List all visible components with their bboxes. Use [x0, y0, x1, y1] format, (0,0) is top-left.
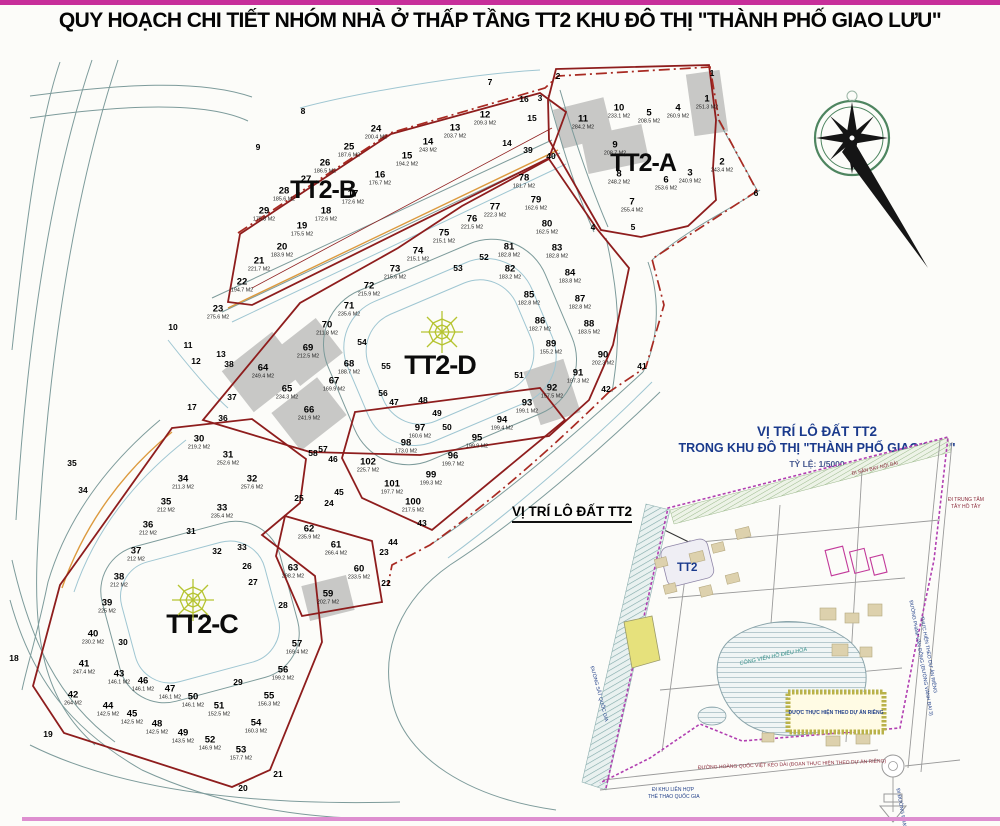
- parcel-area: 199.4 M2: [491, 426, 513, 432]
- parcel-64: 64249.4 M2: [249, 364, 276, 381]
- parcel-area: 176.7 M2: [369, 181, 391, 187]
- road-marker-44: 44: [388, 537, 397, 547]
- parcel-number: 32: [238, 475, 265, 485]
- parcel-number: 21: [245, 257, 272, 267]
- parcel-4: 4260.9 M2: [664, 104, 691, 121]
- parcel-number: 7: [618, 198, 645, 208]
- parcel-number: 95: [463, 434, 490, 444]
- parcel-area: 199.1 M2: [516, 409, 538, 415]
- road-marker-18: 18: [9, 653, 18, 663]
- parcel-10: 10233.1 M2: [605, 104, 632, 121]
- parcel-number: 25: [335, 143, 362, 153]
- page-title: QUY HOẠCH CHI TIẾT NHÓM NHÀ Ở THẤP TẦNG …: [0, 9, 1000, 33]
- parcel-area: 235.9 M2: [298, 535, 320, 541]
- parcel-number: 57: [283, 640, 310, 650]
- parcel-area: 199.3 M2: [420, 481, 442, 487]
- parcel-82: 82183.2 M2: [496, 265, 523, 282]
- parcel-area: 249.4 M2: [252, 374, 274, 380]
- parcel-area: 257.6 M2: [241, 485, 263, 491]
- parcel-45: 45142.5 M2: [118, 710, 145, 727]
- parcel-area: 183.9 M2: [271, 253, 293, 259]
- parcel-99: 99199.3 M2: [417, 471, 444, 488]
- parcel-number: 42: [62, 691, 84, 701]
- parcel-75: 75215.1 M2: [430, 229, 457, 246]
- parcel-101: 101197.7 M2: [378, 480, 405, 497]
- parcel-area: 146.1 M2: [182, 703, 204, 709]
- parcel-number: 90: [589, 351, 616, 361]
- loc-map-label: CÔNG VIÊN HỒ ĐIỀU HÒA: [739, 648, 807, 668]
- parcel-95: 95199.9 M2: [463, 434, 490, 451]
- road-marker-58: 58: [308, 448, 317, 458]
- parcel-number: 50: [179, 693, 206, 703]
- road-marker-36: 36: [218, 413, 227, 423]
- road-marker-17: 17: [187, 402, 196, 412]
- parcel-54: 54160.3 M2: [242, 719, 269, 736]
- parcel-number: 55: [255, 692, 282, 702]
- parcel-area: 172.6 M2: [342, 200, 364, 206]
- parcel-area: 157.5 M2: [541, 394, 563, 400]
- parcel-area: 215.9 M2: [358, 292, 380, 298]
- parcel-area: 169.9 M2: [323, 387, 345, 393]
- parcel-area: 183.8 M2: [559, 279, 581, 285]
- parcel-number: 39: [96, 599, 118, 609]
- parcel-number: 34: [170, 475, 197, 485]
- parcel-area: 215.6 M2: [384, 275, 406, 281]
- parcel-area: 234.3 M2: [276, 395, 298, 401]
- parcel-number: 97: [406, 424, 433, 434]
- parcel-81: 81182.8 M2: [495, 243, 522, 260]
- road-marker-38: 38: [224, 359, 233, 369]
- parcel-number: 63: [279, 564, 306, 574]
- road-marker-15: 15: [527, 113, 536, 123]
- parcel-area: 142.5 M2: [146, 730, 168, 736]
- parcel-area: 199.9 M2: [466, 444, 488, 450]
- road-marker-8: 8: [301, 106, 306, 116]
- parcel-number: 31: [214, 451, 241, 461]
- parcel-number: 99: [417, 471, 444, 481]
- parcel-number: 15: [393, 152, 420, 162]
- parcel-24: 24200.4 M2: [362, 125, 389, 142]
- parcel-93: 93199.1 M2: [513, 399, 540, 416]
- parcel-number: 52: [196, 736, 223, 746]
- parcel-65: 65234.3 M2: [273, 385, 300, 402]
- road-marker-26: 26: [242, 561, 251, 571]
- parcel-number: 8: [605, 170, 632, 180]
- parcel-23: 23275.6 M2: [204, 305, 231, 322]
- parcel-28: 28185.6 M2: [270, 187, 297, 204]
- road-marker-35: 35: [67, 458, 76, 468]
- parcel-area: 215.1 M2: [433, 239, 455, 245]
- parcel-number: 93: [513, 399, 540, 409]
- parcel-80: 80162.5 M2: [533, 220, 560, 237]
- road-marker-13: 13: [216, 349, 225, 359]
- parcel-number: 62: [295, 525, 322, 535]
- parcel-49: 49143.5 M2: [169, 729, 196, 746]
- parcel-3: 3240.9 M2: [676, 169, 703, 186]
- parcel-number: 70: [314, 321, 341, 331]
- parcel-area: 241.9 M2: [298, 416, 320, 422]
- parcel-number: 87: [566, 295, 593, 305]
- parcel-70: 70211.8 M2: [314, 321, 341, 338]
- road-marker-29: 29: [233, 677, 242, 687]
- parcel-number: 60: [345, 565, 372, 575]
- parcel-area: 248.2 M2: [608, 180, 630, 186]
- parcel-number: 59: [314, 590, 341, 600]
- road-marker-48: 48: [418, 395, 427, 405]
- parcel-number: 22: [228, 278, 255, 288]
- road-marker-37: 37: [227, 392, 236, 402]
- parcel-area: 225.7 M2: [357, 468, 379, 474]
- parcel-59: 59202.7 M2: [314, 590, 341, 607]
- parcel-area: 143.5 M2: [172, 739, 194, 745]
- parcel-number: 78: [510, 174, 537, 184]
- parcel-area: 186.5 M2: [314, 169, 336, 175]
- parcel-102: 102225.7 M2: [354, 458, 381, 475]
- parcel-98: 98173.0 M2: [392, 439, 419, 456]
- parcel-94: 94199.4 M2: [488, 416, 515, 433]
- parcel-area: 157.7 M2: [230, 756, 252, 762]
- parcel-area: 247.4 M2: [73, 670, 95, 676]
- road-marker-33: 33: [237, 542, 246, 552]
- parcel-area: 173.0 M2: [395, 449, 417, 455]
- road-marker-27: 27: [248, 577, 257, 587]
- parcel-number: 1: [693, 95, 720, 105]
- parcel-area: 146.9 M2: [199, 746, 221, 752]
- parcel-area: 208.7 M2: [604, 151, 626, 157]
- parcel-number: 96: [439, 452, 466, 462]
- parcel-area: 181.7 M2: [513, 184, 535, 190]
- parcel-area: 162.6 M2: [525, 206, 547, 212]
- parcel-area: 156.3 M2: [258, 702, 280, 708]
- parcel-area: 225 M2: [98, 609, 116, 615]
- parcel-66: 66241.9 M2: [295, 406, 322, 423]
- parcel-area: 152.5 M2: [208, 712, 230, 718]
- parcel-area: 215.1 M2: [407, 257, 429, 263]
- road-marker-12: 12: [191, 356, 200, 366]
- road-marker-41: 41: [637, 361, 646, 371]
- parcel-100: 100217.5 M2: [399, 498, 426, 515]
- parcel-area: 266.4 M2: [325, 551, 347, 557]
- parcel-13: 13203.7 M2: [441, 124, 468, 141]
- parcel-90: 90202.3 M2: [589, 351, 616, 368]
- parcel-number: 10: [605, 104, 632, 114]
- parcel-number: 9: [601, 141, 628, 151]
- parcel-number: 24: [362, 125, 389, 135]
- parcel-area: 175.8 M2: [253, 217, 275, 223]
- parcel-86: 86182.7 M2: [526, 317, 553, 334]
- parcel-area: 155.2 M2: [540, 350, 562, 356]
- parcel-30: 30219.2 M2: [185, 435, 212, 452]
- parcel-area: 162.5 M2: [536, 230, 558, 236]
- parcel-72: 72215.9 M2: [355, 282, 382, 299]
- parcel-53: 53157.7 M2: [227, 746, 254, 763]
- road-marker-56: 56: [378, 388, 387, 398]
- parcel-area: 142.5 M2: [121, 720, 143, 726]
- road-marker-42: 42: [601, 384, 610, 394]
- parcel-area: 194.2 M2: [396, 162, 418, 168]
- road-marker-1: 1: [710, 68, 715, 78]
- parcel-number: 17: [339, 190, 366, 200]
- parcel-area: 211.3 M2: [172, 485, 194, 491]
- road-marker-11: 11: [184, 340, 193, 350]
- parcel-area: 212 M2: [139, 531, 157, 537]
- parcel-area: 175.5 M2: [291, 232, 313, 238]
- parcel-number: 6: [652, 176, 679, 186]
- parcel-17: 17172.6 M2: [339, 190, 366, 207]
- road-marker-22: 22: [381, 578, 390, 588]
- parcel-number: 65: [273, 385, 300, 395]
- loc-map-label: ĐI KHU LIÊN HỢP: [652, 788, 694, 793]
- parcel-79: 79162.6 M2: [522, 196, 549, 213]
- parcel-area: 252.6 M2: [217, 461, 239, 467]
- parcel-48: 48142.5 M2: [143, 720, 170, 737]
- parcel-35: 35212 M2: [155, 498, 177, 515]
- parcel-area: 200.4 M2: [365, 135, 387, 141]
- parcel-area: 298.2 M2: [282, 574, 304, 580]
- parcel-area: 142.5 M2: [97, 712, 119, 718]
- parcel-26: 26186.5 M2: [311, 159, 338, 176]
- road-marker-49: 49: [432, 408, 441, 418]
- parcel-number: 53: [227, 746, 254, 756]
- parcel-11: 11284.2 M2: [569, 115, 596, 132]
- parcel-area: 160.3 M2: [245, 729, 267, 735]
- parcel-number: 98: [392, 439, 419, 449]
- road-marker-32: 32: [212, 546, 221, 556]
- parcel-73: 73215.6 M2: [381, 265, 408, 282]
- parcel-number: 30: [185, 435, 212, 445]
- parcel-number: 20: [268, 243, 295, 253]
- road-marker-43: 43: [417, 518, 426, 528]
- parcel-88: 88183.5 M2: [575, 320, 602, 337]
- parcel-29: 29175.8 M2: [250, 207, 277, 224]
- parcel-area: 146.1 M2: [132, 687, 154, 693]
- parcel-36: 36212 M2: [137, 521, 159, 538]
- road-marker-45: 45: [334, 487, 343, 497]
- loc-map-label: ĐI SÂN BAY NỘI BÀI: [851, 461, 898, 477]
- road-marker-25: 25: [294, 493, 303, 503]
- parcel-61: 61266.4 M2: [322, 541, 349, 558]
- parcel-39: 39225 M2: [96, 599, 118, 616]
- parcel-37: 37212 M2: [125, 547, 147, 564]
- parcel-area: 199.2 M2: [272, 676, 294, 682]
- parcel-area: 203.7 M2: [444, 134, 466, 140]
- parcel-52: 52146.9 M2: [196, 736, 223, 753]
- parcel-12: 12209.3 M2: [471, 111, 498, 128]
- road-marker-47: 47: [389, 397, 398, 407]
- parcel-number: 36: [137, 521, 159, 531]
- road-marker-34: 34: [78, 485, 87, 495]
- parcel-area: 212 M2: [110, 583, 128, 589]
- road-marker-40: 40: [546, 151, 555, 161]
- parcel-41: 41247.4 M2: [70, 660, 97, 677]
- parcel-67: 67169.9 M2: [320, 377, 347, 394]
- parcel-area: 211.8 M2: [316, 331, 338, 337]
- parcel-area: 146.1 M2: [159, 695, 181, 701]
- parcel-number: 16: [366, 171, 393, 181]
- parcel-68: 68188.7 M2: [335, 360, 362, 377]
- parcel-89: 89155.2 M2: [537, 340, 564, 357]
- parcel-number: 66: [295, 406, 322, 416]
- parcel-number: 38: [108, 573, 130, 583]
- parcel-number: 33: [208, 504, 235, 514]
- parcel-33: 33235.4 M2: [208, 504, 235, 521]
- parcel-area: 240.9 M2: [679, 179, 701, 185]
- road-marker-55: 55: [381, 361, 390, 371]
- parcel-number: 92: [538, 384, 565, 394]
- parcel-number: 18: [312, 207, 339, 217]
- parcel-area: 183.2 M2: [499, 275, 521, 281]
- parcel-46: 46146.1 M2: [129, 677, 156, 694]
- parcel-area: 188.7 M2: [338, 370, 360, 376]
- parcel-number: 88: [575, 320, 602, 330]
- loc-map-label: ĐI TRUNG TÂM: [948, 498, 984, 503]
- parcel-area: 183.5 M2: [578, 330, 600, 336]
- parcel-area: 219.2 M2: [188, 445, 210, 451]
- parcel-number: 13: [441, 124, 468, 134]
- parcel-area: 197.3 M2: [567, 379, 589, 385]
- parcel-number: 73: [381, 265, 408, 275]
- road-marker-3: 3: [538, 93, 543, 103]
- parcel-22: 22194.7 M2: [228, 278, 255, 295]
- road-marker-16: 16: [519, 94, 528, 104]
- parcel-number: 82: [496, 265, 523, 275]
- parcel-area: 217.5 M2: [402, 508, 424, 514]
- road-marker-21: 21: [273, 769, 282, 779]
- road-marker-54: 54: [357, 337, 366, 347]
- road-marker-19: 19: [43, 729, 52, 739]
- parcel-8: 8248.2 M2: [605, 170, 632, 187]
- parcel-area: 235.6 M2: [338, 312, 360, 318]
- parcel-1: 1251.3 M2: [693, 95, 720, 112]
- road-marker-39: 39: [523, 145, 532, 155]
- parcel-number: 85: [515, 291, 542, 301]
- road-marker-4: 4: [591, 222, 596, 232]
- parcel-number: 94: [488, 416, 515, 426]
- parcel-number: 28: [270, 187, 297, 197]
- parcel-number: 64: [249, 364, 276, 374]
- parcel-number: 81: [495, 243, 522, 253]
- parcel-63: 63298.2 M2: [279, 564, 306, 581]
- parcel-50: 50146.1 M2: [179, 693, 206, 710]
- parcel-number: 100: [399, 498, 426, 508]
- road-marker-30: 30: [118, 637, 127, 647]
- road-marker-14: 14: [502, 138, 511, 148]
- parcel-74: 74215.1 M2: [404, 247, 431, 264]
- parcel-number: 69: [294, 344, 321, 354]
- parcel-84: 84183.8 M2: [556, 269, 583, 286]
- parcel-area: 275.6 M2: [207, 315, 229, 321]
- road-marker-53: 53: [453, 263, 462, 273]
- parcel-number: 61: [322, 541, 349, 551]
- road-marker-5: 5: [631, 222, 636, 232]
- parcel-number: 14: [417, 138, 439, 148]
- parcel-area: 169.4 M2: [286, 650, 308, 656]
- parcel-area: 182.8 M2: [518, 301, 540, 307]
- parcel-number: 41: [70, 660, 97, 670]
- parcel-area: 221.7 M2: [248, 267, 270, 273]
- parcel-91: 91197.3 M2: [564, 369, 591, 386]
- road-marker-10: 10: [168, 322, 177, 332]
- parcel-area: 187.6 M2: [338, 153, 360, 159]
- parcel-16: 16176.7 M2: [366, 171, 393, 188]
- parcel-area: 284.2 M2: [572, 125, 594, 131]
- parcel-60: 60233.5 M2: [345, 565, 372, 582]
- parcel-area: 264 M2: [64, 701, 82, 707]
- parcel-25: 25187.6 M2: [335, 143, 362, 160]
- parcel-area: 182.8 M2: [569, 305, 591, 311]
- parcel-area: 208.5 M2: [638, 119, 660, 125]
- parcel-number: 2: [708, 158, 735, 168]
- road-marker-6: 6: [754, 188, 759, 198]
- parcel-77: 77222.3 M2: [481, 203, 508, 220]
- parcel-51: 51152.5 M2: [205, 702, 232, 719]
- parcel-area: 202.7 M2: [317, 600, 339, 606]
- parcel-number: 102: [354, 458, 381, 468]
- parcel-7: 7255.4 M2: [618, 198, 645, 215]
- parcel-number: 79: [522, 196, 549, 206]
- parcel-area: 199.7 M2: [442, 462, 464, 468]
- parcel-34: 34211.3 M2: [170, 475, 197, 492]
- parcel-6: 6253.6 M2: [652, 176, 679, 193]
- parcel-area: 212 M2: [157, 508, 175, 514]
- parcel-85: 85182.8 M2: [515, 291, 542, 308]
- parcel-number: 56: [269, 666, 296, 676]
- planning-map-canvas: QUY HOẠCH CHI TIẾT NHÓM NHÀ Ở THẤP TẦNG …: [0, 0, 1000, 826]
- parcel-area: 182.7 M2: [529, 327, 551, 333]
- parcel-62: 62235.9 M2: [295, 525, 322, 542]
- parcel-number: 45: [118, 710, 145, 720]
- parcel-area: 182.8 M2: [498, 253, 520, 259]
- loc-map-label: ĐƯỜNG HOÀNG QUỐC VIỆT KÉO DÀI (ĐOẠN THỰC…: [698, 759, 886, 771]
- parcel-area: 194.7 M2: [231, 288, 253, 294]
- parcel-number: 3: [676, 169, 703, 179]
- parcel-96: 96199.7 M2: [439, 452, 466, 469]
- parcel-area: 172.6 M2: [315, 217, 337, 223]
- parcel-number: 80: [533, 220, 560, 230]
- parcel-9: 9208.7 M2: [601, 141, 628, 158]
- loc-map-label: TÂY HỒ TÂY: [951, 505, 981, 510]
- parcel-area: 255.4 M2: [621, 208, 643, 214]
- parcel-area: 233.1 M2: [608, 114, 630, 120]
- parcel-number: 51: [205, 702, 232, 712]
- road-marker-9: 9: [256, 142, 261, 152]
- parcel-57: 57169.4 M2: [283, 640, 310, 657]
- parcel-number: 83: [543, 244, 570, 254]
- road-marker-46: 46: [328, 454, 337, 464]
- parcel-number: 72: [355, 282, 382, 292]
- parcel-number: 11: [569, 115, 596, 125]
- parcel-number: 26: [311, 159, 338, 169]
- parcel-83: 83182.8 M2: [543, 244, 570, 261]
- parcel-78: 78181.7 M2: [510, 174, 537, 191]
- parcel-19: 19175.5 M2: [288, 222, 315, 239]
- parcel-area: 243 M2: [419, 148, 437, 154]
- parcel-number: 46: [129, 677, 156, 687]
- parcel-87: 87182.8 M2: [566, 295, 593, 312]
- parcel-number: 12: [471, 111, 498, 121]
- parcel-area: 235.4 M2: [211, 514, 233, 520]
- road-marker-31: 31: [186, 526, 195, 536]
- parcel-number: 91: [564, 369, 591, 379]
- parcel-number: 49: [169, 729, 196, 739]
- parcel-56: 56199.2 M2: [269, 666, 296, 683]
- parcel-area: 209.3 M2: [474, 121, 496, 127]
- parcel-area: 243.4 M2: [711, 168, 733, 174]
- parcel-92: 92157.5 M2: [538, 384, 565, 401]
- parcel-5: 5208.5 M2: [635, 109, 662, 126]
- page-border-bottom: [22, 817, 1000, 821]
- parcel-27: 27: [301, 175, 312, 185]
